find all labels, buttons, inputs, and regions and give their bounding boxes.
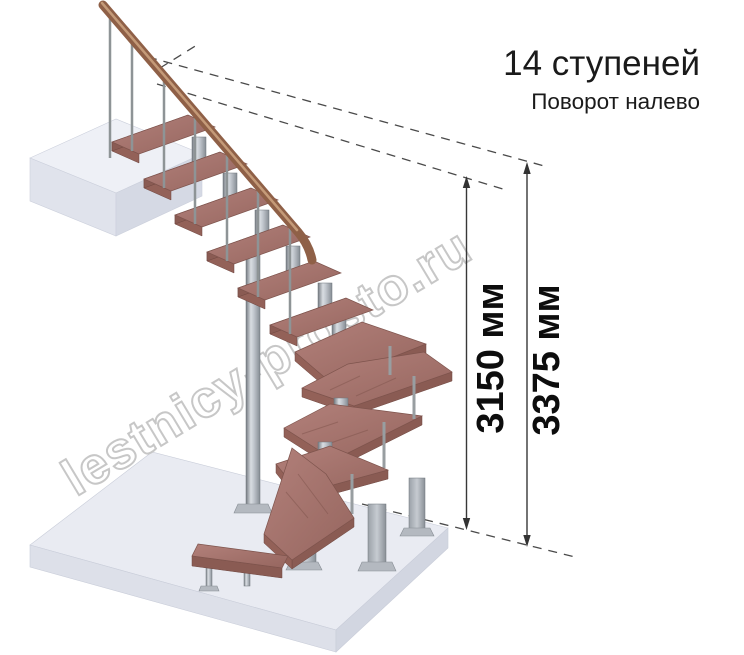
header-text: 14 ступеней Поворот налево bbox=[503, 44, 700, 114]
arrow-down-icon bbox=[463, 518, 470, 530]
arrow-up-icon bbox=[523, 162, 530, 174]
floor-post bbox=[409, 478, 425, 530]
page-subtitle: Поворот налево bbox=[531, 89, 700, 114]
floor-post-plate bbox=[358, 562, 396, 571]
dimension-label-3375: 3375 мм bbox=[526, 284, 568, 435]
floor-post bbox=[368, 504, 386, 564]
center-column-base-plate bbox=[234, 504, 272, 513]
staircase-illustration: lestnicy-prosto.ru bbox=[0, 0, 744, 655]
arrow-down-icon bbox=[523, 535, 530, 547]
page-title: 14 ступеней bbox=[503, 44, 700, 83]
dimension-3375: 3375 мм bbox=[523, 162, 568, 547]
dashed-line-top-level bbox=[148, 57, 548, 167]
bottom-step-post-plate bbox=[199, 586, 219, 591]
dimension-3150: 3150 мм bbox=[463, 176, 512, 530]
dashed-line-corner bbox=[160, 45, 197, 68]
dimension-label-3150: 3150 мм bbox=[470, 282, 512, 433]
staircase-diagram-page: lestnicy-prosto.ru bbox=[0, 0, 744, 655]
floor-post-plate bbox=[400, 528, 434, 536]
